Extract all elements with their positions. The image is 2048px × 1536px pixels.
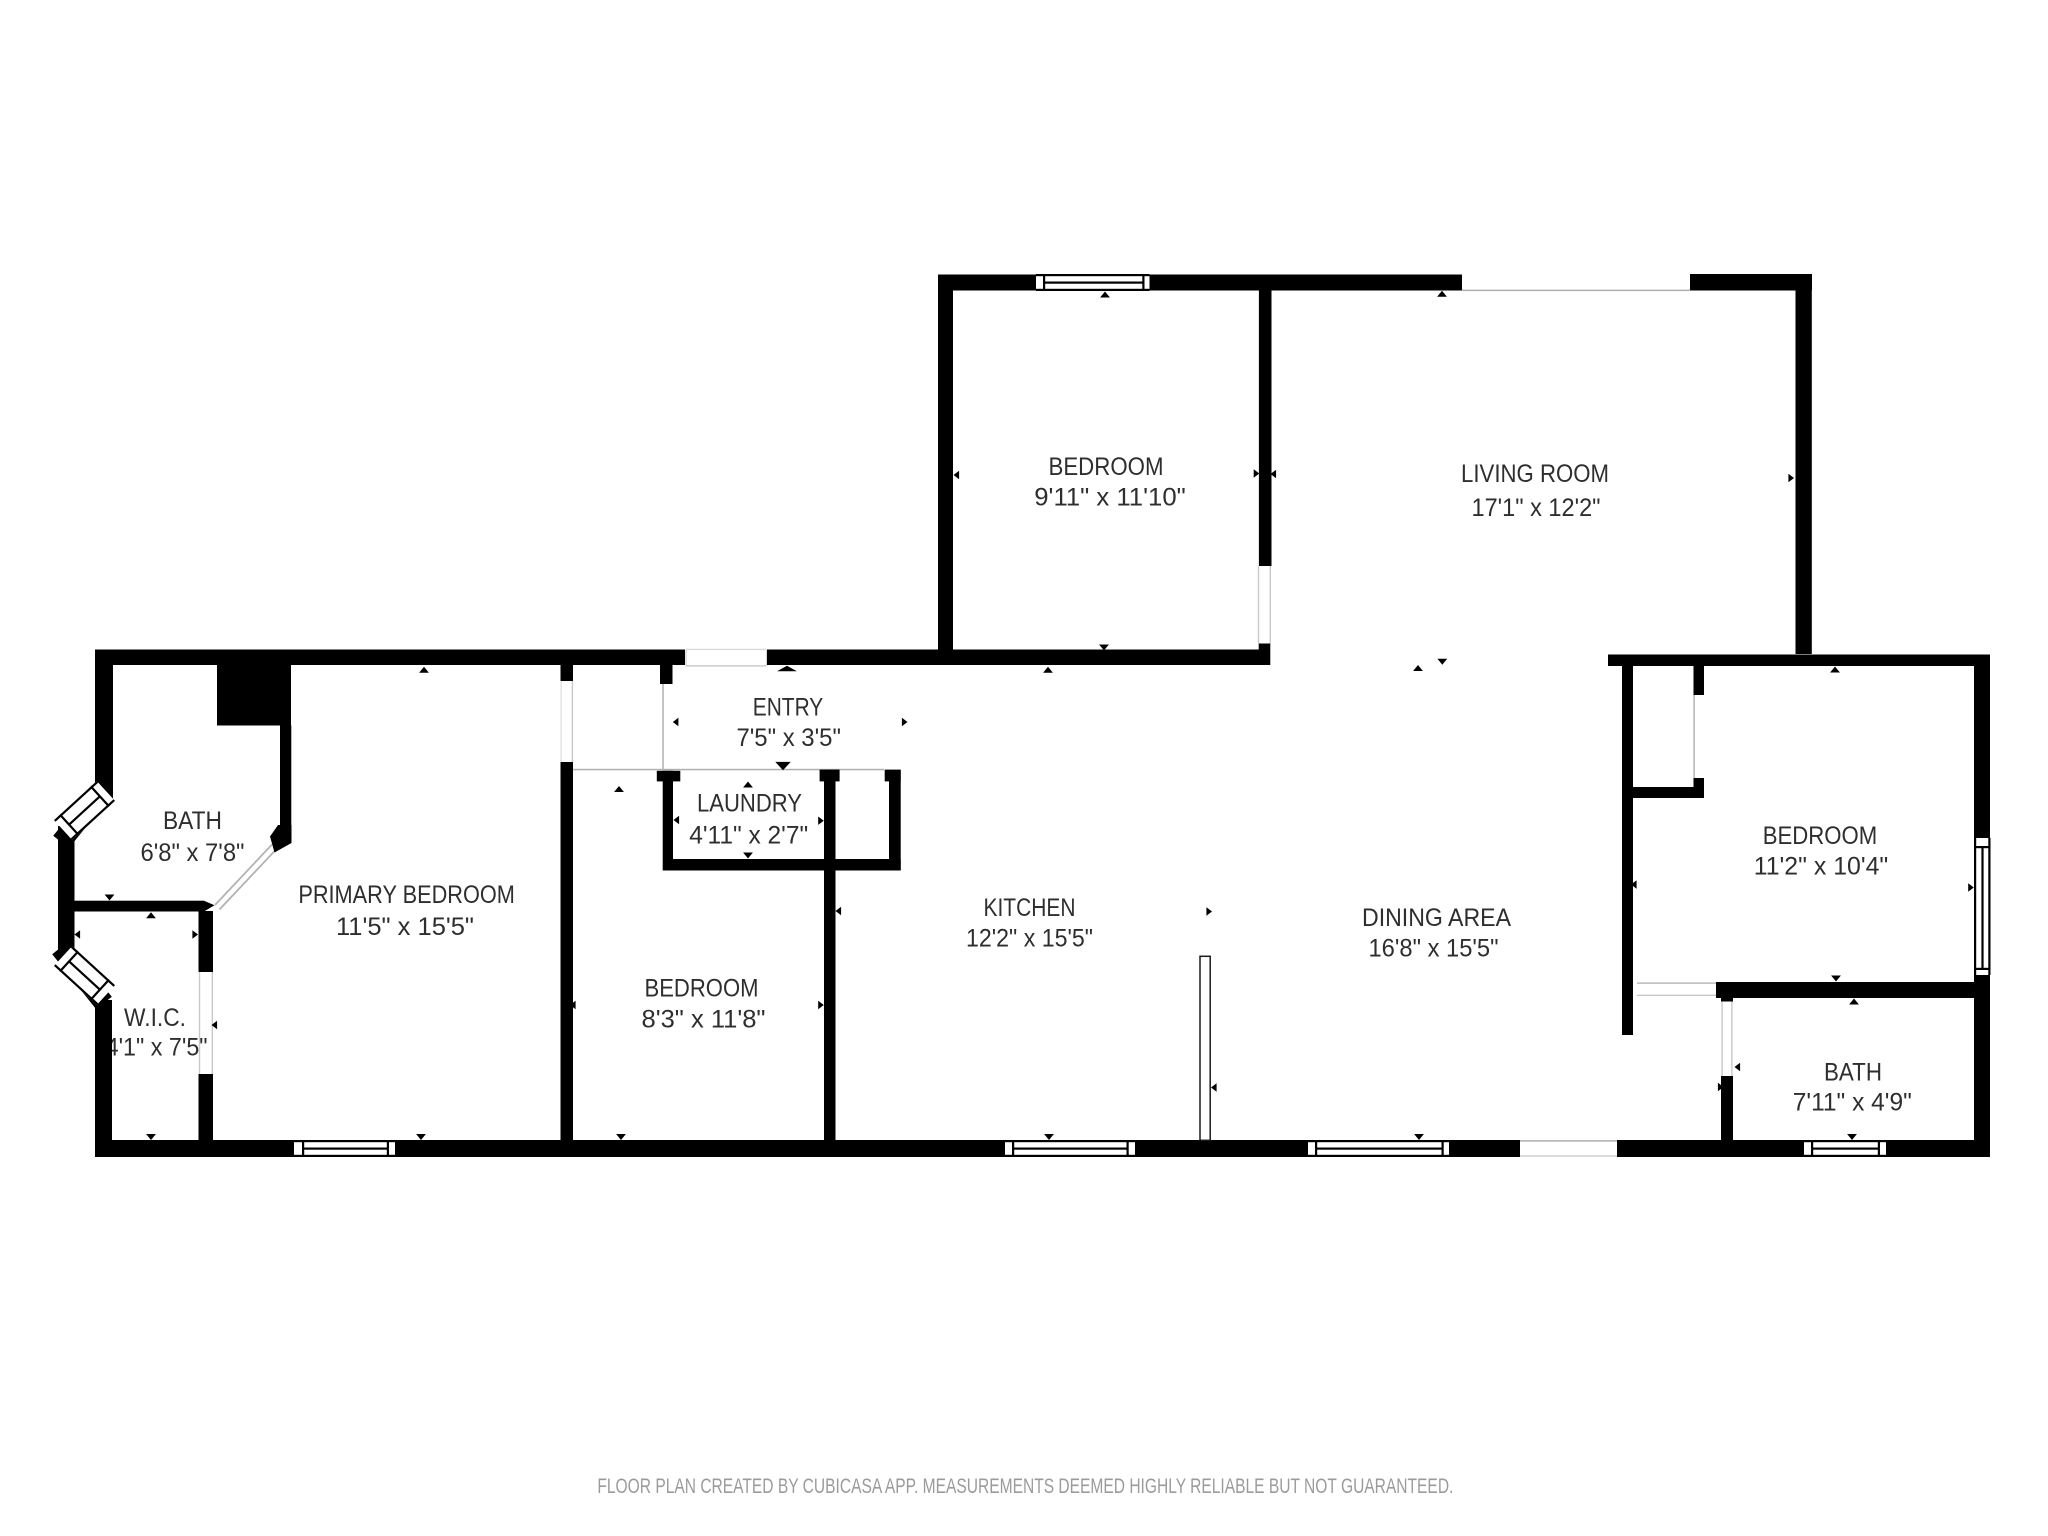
svg-text:BEDROOM: BEDROOM	[1763, 822, 1878, 850]
svg-text:17'1" x 12'2": 17'1" x 12'2"	[1472, 494, 1601, 522]
svg-text:7'5" x 3'5": 7'5" x 3'5"	[736, 724, 841, 752]
svg-text:8'3" x 11'8": 8'3" x 11'8"	[642, 1006, 766, 1034]
svg-text:FLOOR PLAN CREATED BY CUBICASA: FLOOR PLAN CREATED BY CUBICASA APP. MEAS…	[597, 1475, 1453, 1498]
svg-text:KITCHEN: KITCHEN	[984, 894, 1076, 922]
svg-text:6'8" x 7'8": 6'8" x 7'8"	[141, 839, 245, 867]
svg-text:11'5" x 15'5": 11'5" x 15'5"	[336, 913, 474, 941]
svg-text:BEDROOM: BEDROOM	[1049, 453, 1164, 481]
svg-text:BEDROOM: BEDROOM	[645, 975, 759, 1003]
svg-text:12'2" x 15'5": 12'2" x 15'5"	[966, 924, 1093, 952]
svg-text:W.I.C.: W.I.C.	[124, 1004, 186, 1032]
svg-text:LIVING ROOM: LIVING ROOM	[1461, 460, 1609, 488]
svg-text:11'2" x 10'4": 11'2" x 10'4"	[1754, 853, 1889, 881]
svg-text:4'11" x 2'7": 4'11" x 2'7"	[689, 822, 808, 850]
svg-text:9'11" x 11'10": 9'11" x 11'10"	[1034, 484, 1186, 512]
svg-text:ENTRY: ENTRY	[753, 694, 824, 722]
svg-text:7'11" x 4'9": 7'11" x 4'9"	[1793, 1089, 1912, 1117]
svg-text:16'8" x 15'5": 16'8" x 15'5"	[1369, 935, 1499, 963]
svg-text:LAUNDRY: LAUNDRY	[697, 790, 802, 818]
svg-text:PRIMARY BEDROOM: PRIMARY BEDROOM	[298, 881, 514, 909]
svg-text:DINING AREA: DINING AREA	[1362, 904, 1511, 932]
svg-text:4'1" x 7'5": 4'1" x 7'5"	[106, 1034, 208, 1062]
svg-text:BATH: BATH	[1824, 1059, 1882, 1087]
svg-text:BATH: BATH	[163, 807, 222, 835]
